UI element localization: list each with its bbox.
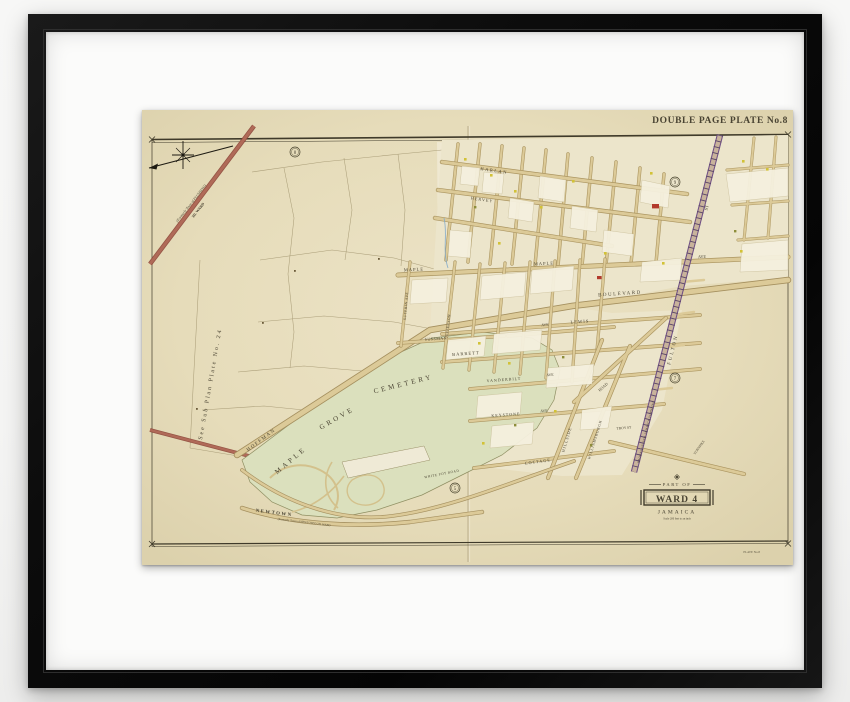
- cartouche-place: JAMAICA: [658, 510, 696, 516]
- map-sheet: DOUBLE PAGE PLATE No.8: [142, 110, 793, 565]
- street-label-maple-e: MAPLE: [534, 261, 554, 267]
- cartouche-part-of: PART OF: [663, 482, 691, 487]
- picture-frame: DOUBLE PAGE PLATE No.8: [28, 14, 822, 688]
- plate-title: DOUBLE PAGE PLATE No.8: [652, 116, 788, 126]
- product-photo: { "artwork": { "plate_title": "DOUBLE PA…: [0, 0, 850, 702]
- corner-imprint: PLATE No.8: [743, 550, 760, 554]
- mat-board: DOUBLE PAGE PLATE No.8: [46, 32, 804, 670]
- street-label-maple-ave: AVE: [698, 254, 707, 259]
- street-label-vanderbilt-ave: AVE: [546, 373, 554, 378]
- street-label-lewis-ave: AVE: [541, 323, 549, 328]
- street-label-maple-w: MAPLE: [404, 267, 424, 273]
- cartouche-scale-note: Scale 200 feet to an inch: [663, 518, 691, 521]
- street-label-keystone-ave: AVE: [540, 409, 548, 414]
- cartouche-ward: WARD 4: [656, 495, 698, 505]
- atlas-map: DOUBLE PAGE PLATE No.8: [142, 110, 793, 565]
